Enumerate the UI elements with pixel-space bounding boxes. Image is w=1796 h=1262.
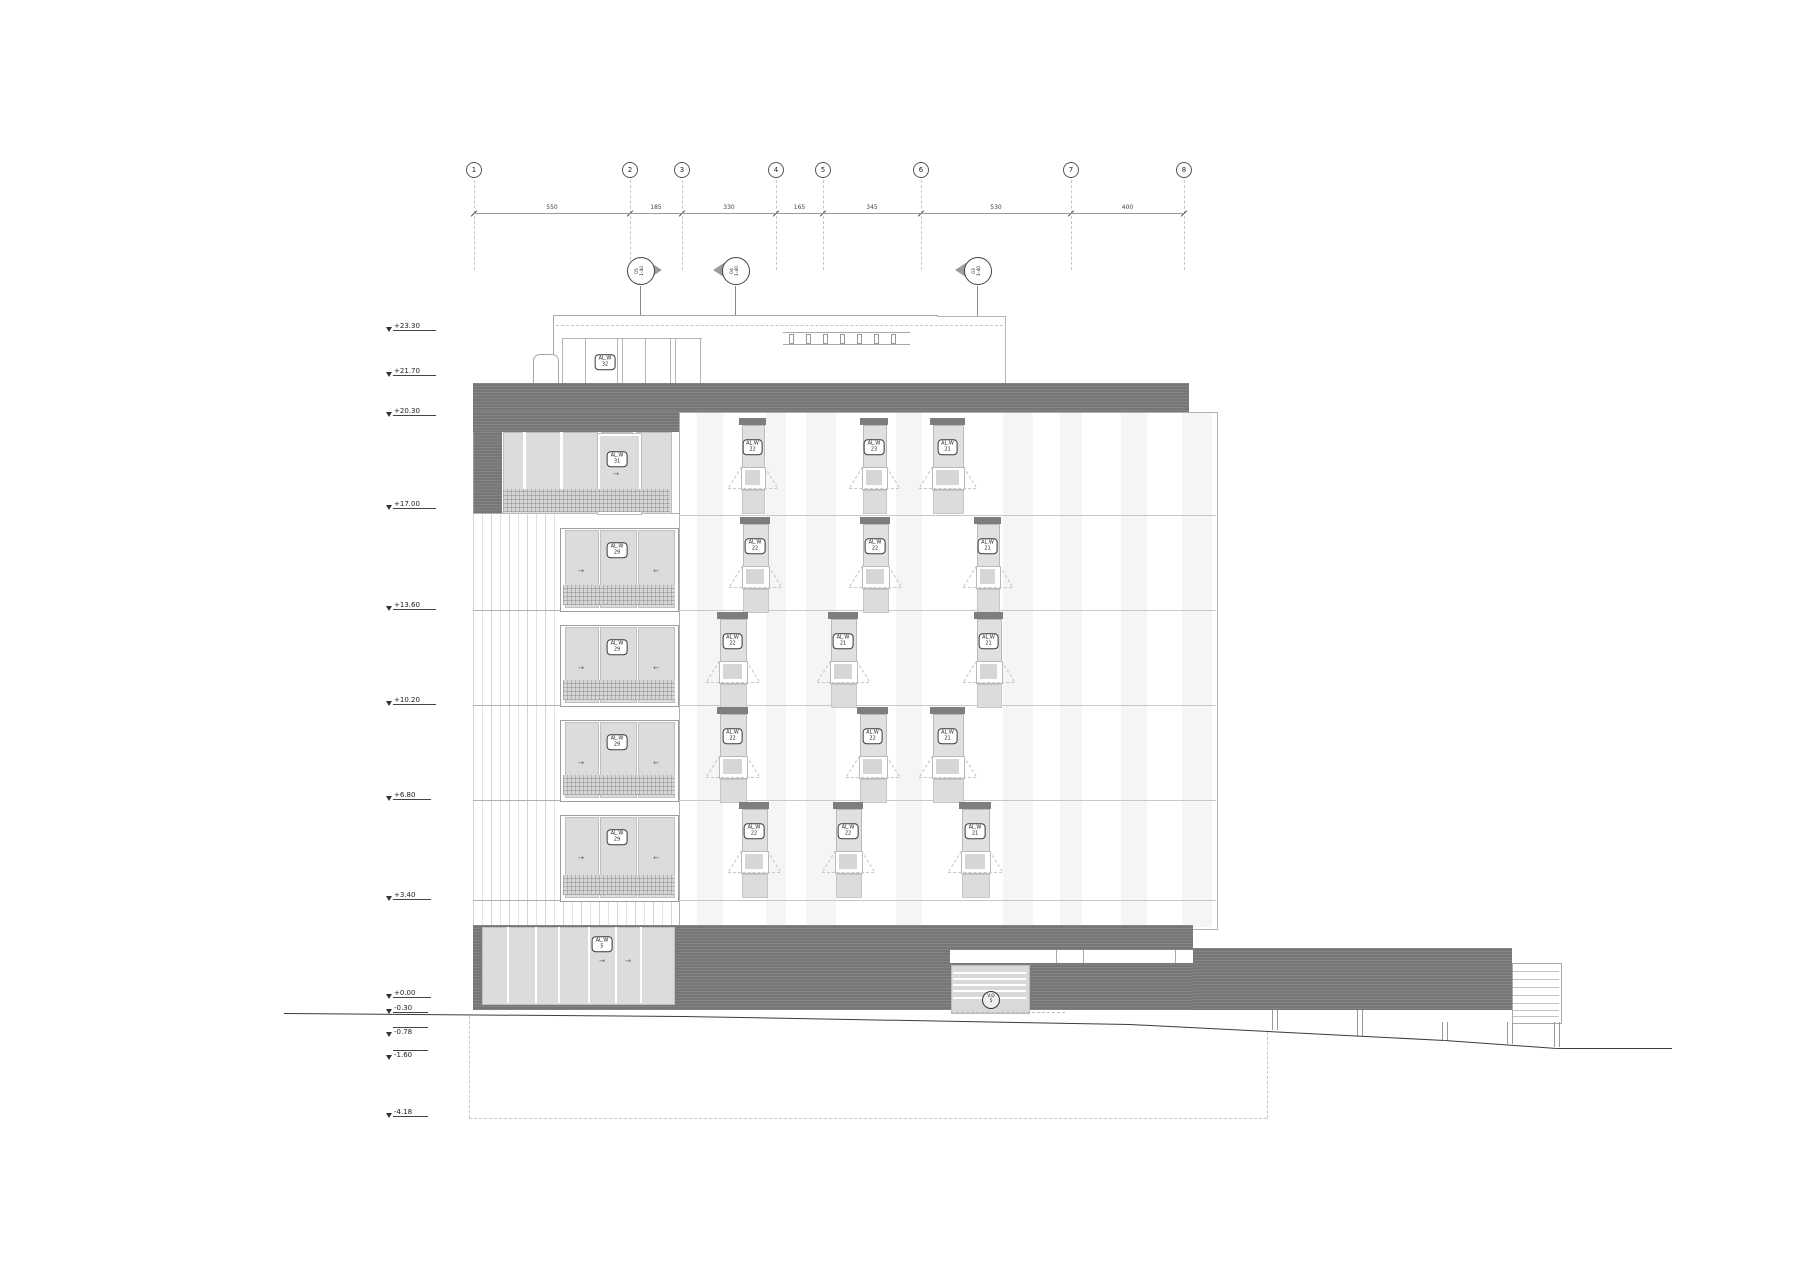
window-header-bar bbox=[930, 707, 965, 714]
wing-louver-line bbox=[1513, 995, 1559, 996]
window-opening-dash-bottom bbox=[963, 682, 1014, 683]
level-triangle-icon bbox=[386, 796, 392, 801]
window-opening-dash-bottom bbox=[706, 682, 759, 683]
window-tag-number: 22 bbox=[842, 831, 855, 837]
grid-line bbox=[776, 180, 777, 270]
parapet-band bbox=[473, 383, 1189, 412]
window-header-bar bbox=[739, 418, 766, 425]
penthouse-mullion bbox=[700, 338, 701, 383]
garage-door-slat bbox=[953, 972, 1026, 974]
window-spandrel-panel bbox=[863, 490, 887, 514]
terrain-ground-line bbox=[1445, 1040, 1557, 1049]
level-label: +20.30 bbox=[393, 407, 436, 416]
wing-louver-line bbox=[1513, 987, 1559, 988]
wing-louver-line bbox=[1513, 1016, 1559, 1017]
level-triangle-icon bbox=[386, 1113, 392, 1118]
left-window-grille bbox=[563, 585, 675, 605]
window-spandrel-panel bbox=[860, 779, 887, 803]
window-tag: AL.W22 bbox=[865, 538, 886, 554]
left-wall-striped-base bbox=[473, 901, 679, 925]
grid-bubble: 7 bbox=[1063, 162, 1079, 178]
storefront-mullion bbox=[588, 927, 590, 1003]
drawing-layer: 12345678550185330165345530400051-40041-4… bbox=[0, 0, 1796, 1262]
grid-bubble: 3 bbox=[674, 162, 690, 178]
window-tag: AL.W21 bbox=[833, 633, 854, 649]
level-marker: -1.60 bbox=[386, 1050, 428, 1059]
window-opening-dash-bottom bbox=[963, 587, 1012, 588]
window-spandrel-panel bbox=[933, 779, 964, 803]
window-header-bar bbox=[740, 517, 770, 524]
window-tag: AL.W21 bbox=[965, 823, 986, 839]
section-marker: 041-40 bbox=[719, 254, 751, 286]
window-tag-number: 22 bbox=[748, 831, 761, 837]
slide-arrow: ← bbox=[653, 759, 659, 767]
window-tag: AL.W5 bbox=[592, 936, 613, 952]
underground-outline-bottom bbox=[469, 1118, 1267, 1119]
section-marker-text: 041-40 bbox=[731, 266, 741, 276]
window-header-bar bbox=[828, 612, 858, 619]
window-sash-glass bbox=[839, 854, 857, 869]
roof-dashed-line bbox=[556, 325, 1003, 326]
window-header-bar bbox=[974, 517, 1001, 524]
penthouse-mullion bbox=[675, 338, 676, 383]
slide-arrow: → bbox=[578, 854, 584, 862]
window-tag-number: 21 bbox=[941, 447, 954, 453]
level-triangle-icon bbox=[386, 1055, 392, 1060]
window-tag: AL.W29 bbox=[607, 639, 628, 655]
grid-line bbox=[474, 180, 475, 270]
window-tag: AL.W22 bbox=[745, 538, 766, 554]
lower-wing-band bbox=[1193, 948, 1512, 1010]
storefront-mullion bbox=[507, 927, 509, 1003]
dimension-label: 330 bbox=[723, 204, 734, 211]
wing-louver-line bbox=[1513, 1010, 1559, 1011]
wing-louver-line bbox=[1513, 971, 1559, 972]
penthouse-mullion bbox=[585, 338, 586, 383]
window-header-bar bbox=[717, 707, 748, 714]
window-header-bar bbox=[959, 802, 991, 809]
penthouse-mullion bbox=[617, 338, 618, 383]
window-sash-glass bbox=[936, 759, 959, 774]
window-tag-number: 22 bbox=[866, 736, 879, 742]
wing-support-leg bbox=[1507, 1022, 1513, 1044]
elevation-drawing-sheet: 12345678550185330165345530400051-40041-4… bbox=[0, 0, 1796, 1262]
garage-tag-line2: 5 bbox=[983, 1000, 999, 1005]
window-tag-number: 22 bbox=[726, 736, 739, 742]
window-tag-number: 29 bbox=[611, 647, 624, 653]
window-tag-number: 22 bbox=[749, 546, 762, 552]
window-header-bar bbox=[833, 802, 863, 809]
window-opening-dash-bottom bbox=[728, 872, 780, 873]
level-triangle-icon bbox=[386, 505, 392, 510]
grid-line bbox=[823, 180, 824, 270]
storefront-mullion bbox=[640, 927, 642, 1003]
window-sash-glass bbox=[863, 759, 882, 774]
facade-shade-column bbox=[1182, 413, 1212, 927]
window-tag-number: 22 bbox=[726, 641, 739, 647]
level-label: +17.00 bbox=[393, 500, 436, 509]
penthouse-mullion bbox=[645, 338, 646, 383]
window-tag-number: 31 bbox=[611, 459, 624, 465]
window-tag: AL.W22 bbox=[838, 823, 859, 839]
entrance-strip-tick bbox=[1083, 950, 1084, 963]
roof-railing-post bbox=[806, 334, 811, 344]
window-tag-number: 22 bbox=[746, 447, 759, 453]
storefront-mullion bbox=[558, 927, 560, 1003]
grid-bubble: 5 bbox=[815, 162, 831, 178]
grid-bubble: 6 bbox=[913, 162, 929, 178]
section-marker-scale: 1-40 bbox=[641, 266, 646, 276]
level-triangle-icon bbox=[386, 701, 392, 706]
level-label: +6.80 bbox=[393, 791, 431, 800]
left-wall-striped bbox=[473, 801, 560, 900]
underground-outline-left bbox=[469, 1016, 470, 1118]
window-tag: AL.W21 bbox=[977, 538, 998, 554]
window-tag: AL.W21 bbox=[937, 728, 958, 744]
dimension-line bbox=[474, 213, 1184, 214]
level-label: +3.40 bbox=[393, 891, 431, 900]
storefront-mullion bbox=[535, 927, 537, 1003]
window-tag-number: 23 bbox=[868, 447, 881, 453]
wing-support-leg bbox=[1357, 1010, 1363, 1036]
level-triangle-icon bbox=[386, 606, 392, 611]
window-tag-number: 21 bbox=[982, 641, 995, 647]
facade-shade-column bbox=[766, 413, 786, 927]
window-spandrel-panel bbox=[933, 490, 964, 514]
level-triangle-icon bbox=[386, 896, 392, 901]
penthouse-mullion bbox=[622, 338, 623, 383]
level-triangle-icon bbox=[386, 994, 392, 999]
dimension-label: 345 bbox=[866, 204, 877, 211]
level-label: +0.00 bbox=[393, 989, 431, 998]
window-opening-dash-bottom bbox=[706, 777, 759, 778]
underground-outline-right bbox=[1267, 1032, 1268, 1118]
section-marker-stem bbox=[735, 286, 736, 316]
dimension-label: 530 bbox=[990, 204, 1001, 211]
slide-arrow: ← bbox=[653, 854, 659, 862]
grid-line bbox=[1184, 180, 1185, 270]
wing-support-leg bbox=[1442, 1022, 1448, 1040]
window-tag: AL.W29 bbox=[607, 829, 628, 845]
window-header-bar bbox=[860, 418, 888, 425]
window-spandrel-panel bbox=[977, 684, 1002, 708]
window-tag-number: 29 bbox=[611, 742, 624, 748]
grid-bubble: 4 bbox=[768, 162, 784, 178]
roof-railing-post bbox=[891, 334, 896, 344]
grid-line bbox=[1071, 180, 1072, 270]
window-tag: AL.W21 bbox=[978, 633, 999, 649]
window-header-bar bbox=[717, 612, 748, 619]
roof-railing-post bbox=[874, 334, 879, 344]
window-spandrel-panel bbox=[720, 779, 747, 803]
left-window-grille bbox=[563, 680, 675, 700]
storefront-mullion bbox=[615, 927, 617, 1003]
level-marker: -0.78 bbox=[386, 1027, 428, 1036]
facade-shade-column bbox=[1121, 413, 1147, 927]
window-spandrel-panel bbox=[863, 589, 889, 613]
garage-door-slat bbox=[953, 978, 1026, 980]
window-tag-number: 29 bbox=[611, 550, 624, 556]
window-spandrel-panel bbox=[977, 589, 1000, 613]
section-marker-stem bbox=[640, 286, 641, 316]
section-marker-text: 031-40 bbox=[973, 266, 983, 276]
penthouse-outline-right bbox=[937, 316, 1006, 385]
window-sash-glass bbox=[745, 470, 760, 485]
window-tag-number: 21 bbox=[969, 831, 982, 837]
slide-arrow: → bbox=[578, 567, 584, 575]
facade-floor-line bbox=[679, 515, 1216, 516]
window-tag: AL.W22 bbox=[742, 439, 763, 455]
penthouse-glazing-head bbox=[562, 338, 702, 339]
grid-bubble: 2 bbox=[622, 162, 638, 178]
window-tag-number: 21 bbox=[941, 736, 954, 742]
window-sash-glass bbox=[866, 569, 884, 584]
window-sash-glass bbox=[866, 470, 882, 485]
window-spandrel-panel bbox=[836, 874, 862, 898]
grid-bubble: 1 bbox=[466, 162, 482, 178]
level-triangle-icon bbox=[386, 412, 392, 417]
window-tag-number: 22 bbox=[869, 546, 882, 552]
level-marker: +20.30 bbox=[386, 407, 436, 416]
level-label: +21.70 bbox=[393, 367, 436, 376]
slide-arrow: ← bbox=[653, 567, 659, 575]
window-tag: AL.W32 bbox=[595, 354, 616, 370]
window-sash-glass bbox=[936, 470, 959, 485]
level-label: +10.20 bbox=[393, 696, 436, 705]
window-tag-number: 5 bbox=[596, 944, 609, 950]
wing-louver-line bbox=[1513, 979, 1559, 980]
section-marker-scale: 1-40 bbox=[978, 266, 983, 276]
window-tag: AL.W29 bbox=[607, 734, 628, 750]
window-tag: AL.W21 bbox=[937, 439, 958, 455]
level-triangle-icon bbox=[386, 372, 392, 377]
window-opening-dash-bottom bbox=[729, 587, 781, 588]
level-marker: +23.30 bbox=[386, 322, 436, 331]
grid-line bbox=[921, 180, 922, 270]
slide-arrow: → bbox=[613, 470, 619, 478]
dimension-label: 400 bbox=[1122, 204, 1133, 211]
level-marker: +13.60 bbox=[386, 601, 436, 610]
level-label: -0.30 bbox=[393, 1004, 428, 1013]
window-sash-glass bbox=[746, 569, 764, 584]
facade-floor-line bbox=[679, 705, 1216, 706]
window-opening-dash-bottom bbox=[849, 587, 901, 588]
window-sash-glass bbox=[745, 854, 763, 869]
window-opening-dash-bottom bbox=[849, 488, 899, 489]
window-spandrel-panel bbox=[742, 490, 765, 514]
storefront-glazing bbox=[482, 927, 675, 1005]
facade-shade-column bbox=[1060, 413, 1082, 927]
slide-arrow: → bbox=[578, 664, 584, 672]
level-label: -0.78 bbox=[393, 1027, 428, 1036]
terrain-ground-line bbox=[1557, 1048, 1672, 1049]
left-window-grille bbox=[563, 875, 675, 895]
window-header-bar bbox=[930, 418, 965, 425]
wing-louver-box bbox=[1512, 963, 1562, 1024]
window-tag: AL.W22 bbox=[862, 728, 883, 744]
window-tag: AL.W22 bbox=[722, 633, 743, 649]
section-marker-text: 051-40 bbox=[636, 266, 646, 276]
wing-louver-line bbox=[1513, 1003, 1559, 1004]
left-window-grille bbox=[563, 775, 675, 795]
window-sash-glass bbox=[834, 664, 852, 679]
left-topfloor-grille bbox=[503, 489, 670, 512]
window-tag: AL.W23 bbox=[864, 439, 885, 455]
dimension-label: 165 bbox=[794, 204, 805, 211]
garage-door-slat bbox=[953, 984, 1026, 986]
garage-door-tag: V.D5 bbox=[982, 991, 1000, 1009]
window-sash-glass bbox=[980, 569, 995, 584]
window-tag-number: 21 bbox=[837, 641, 850, 647]
window-spandrel-panel bbox=[742, 874, 768, 898]
window-opening-dash-bottom bbox=[948, 872, 1002, 873]
window-opening-dash-bottom bbox=[846, 777, 899, 778]
level-marker: +10.20 bbox=[386, 696, 436, 705]
parapet-left-column bbox=[473, 432, 502, 513]
window-tag: AL.W29 bbox=[607, 542, 628, 558]
window-spandrel-panel bbox=[831, 684, 857, 708]
window-sash-glass bbox=[980, 664, 997, 679]
window-sash-glass bbox=[723, 759, 742, 774]
grid-line bbox=[682, 180, 683, 270]
slide-arrow: → bbox=[578, 759, 584, 767]
window-spandrel-panel bbox=[962, 874, 990, 898]
slide-arrow: → bbox=[625, 957, 631, 965]
facade-floor-line bbox=[679, 900, 1216, 901]
slide-arrow: → bbox=[599, 957, 605, 965]
grid-bubble: 8 bbox=[1176, 162, 1192, 178]
window-tag-number: 29 bbox=[611, 837, 624, 843]
penthouse-mullion bbox=[562, 338, 563, 383]
window-sash-glass bbox=[723, 664, 742, 679]
window-header-bar bbox=[860, 517, 890, 524]
window-header-bar bbox=[739, 802, 769, 809]
level-marker: -4.18 bbox=[386, 1108, 428, 1117]
left-wall-striped bbox=[473, 706, 560, 800]
window-opening-dash-bottom bbox=[817, 682, 869, 683]
wing-support-leg bbox=[1554, 1022, 1560, 1047]
left-wall-striped bbox=[473, 611, 560, 705]
section-marker-scale: 1-40 bbox=[736, 266, 741, 276]
roof-chimney bbox=[533, 354, 559, 384]
level-label: -1.60 bbox=[393, 1050, 428, 1059]
entrance-white-strip bbox=[950, 950, 1193, 963]
section-marker: 031-40 bbox=[961, 254, 993, 286]
penthouse-mullion bbox=[670, 338, 671, 383]
left-wall-striped bbox=[473, 514, 560, 610]
dimension-label: 550 bbox=[546, 204, 557, 211]
level-marker: -0.30 bbox=[386, 1004, 428, 1013]
roof-railing-post bbox=[840, 334, 845, 344]
roof-railing-post bbox=[857, 334, 862, 344]
level-marker: +3.40 bbox=[386, 891, 431, 900]
section-marker-stem bbox=[977, 286, 978, 316]
window-sash-glass bbox=[965, 854, 985, 869]
terrain-ground-line bbox=[1130, 1024, 1445, 1041]
window-opening-dash-bottom bbox=[822, 872, 874, 873]
window-opening-dash-bottom bbox=[728, 488, 777, 489]
level-marker: +17.00 bbox=[386, 500, 436, 509]
garage-dashed-sill bbox=[951, 1012, 1065, 1013]
window-header-bar bbox=[974, 612, 1003, 619]
roof-railing-post bbox=[823, 334, 828, 344]
level-label: -4.18 bbox=[393, 1108, 428, 1117]
level-marker: +21.70 bbox=[386, 367, 436, 376]
terrain-ground-line bbox=[683, 1016, 1130, 1025]
entrance-strip-tick bbox=[1056, 950, 1057, 963]
window-opening-dash-bottom bbox=[919, 488, 976, 489]
entrance-strip-tick bbox=[1175, 950, 1176, 963]
window-spandrel-panel bbox=[743, 589, 769, 613]
wing-support-leg bbox=[1272, 1010, 1278, 1030]
section-marker-circle: 041-40 bbox=[722, 257, 750, 285]
window-tag: AL.W22 bbox=[722, 728, 743, 744]
window-opening-dash-bottom bbox=[919, 777, 976, 778]
section-marker: 051-40 bbox=[624, 254, 656, 286]
level-label: +23.30 bbox=[393, 322, 436, 331]
window-header-bar bbox=[857, 707, 888, 714]
facade-shade-column bbox=[896, 413, 922, 927]
level-marker: +0.00 bbox=[386, 989, 431, 998]
window-tag: AL.W22 bbox=[744, 823, 765, 839]
section-marker-circle: 051-40 bbox=[627, 257, 655, 285]
parapet-band-left bbox=[473, 412, 679, 432]
window-tag: AL.W31 bbox=[607, 451, 628, 467]
level-triangle-icon bbox=[386, 327, 392, 332]
roof-railing-post bbox=[789, 334, 794, 344]
level-label: +13.60 bbox=[393, 601, 436, 610]
window-tag-number: 32 bbox=[599, 362, 612, 368]
window-spandrel-panel bbox=[720, 684, 747, 708]
slide-arrow: ← bbox=[653, 664, 659, 672]
window-tag-number: 21 bbox=[981, 546, 994, 552]
section-marker-circle: 031-40 bbox=[964, 257, 992, 285]
level-triangle-icon bbox=[386, 1032, 392, 1037]
dimension-label: 185 bbox=[650, 204, 661, 211]
level-marker: +6.80 bbox=[386, 791, 431, 800]
terrain-ground-line bbox=[284, 1013, 683, 1017]
